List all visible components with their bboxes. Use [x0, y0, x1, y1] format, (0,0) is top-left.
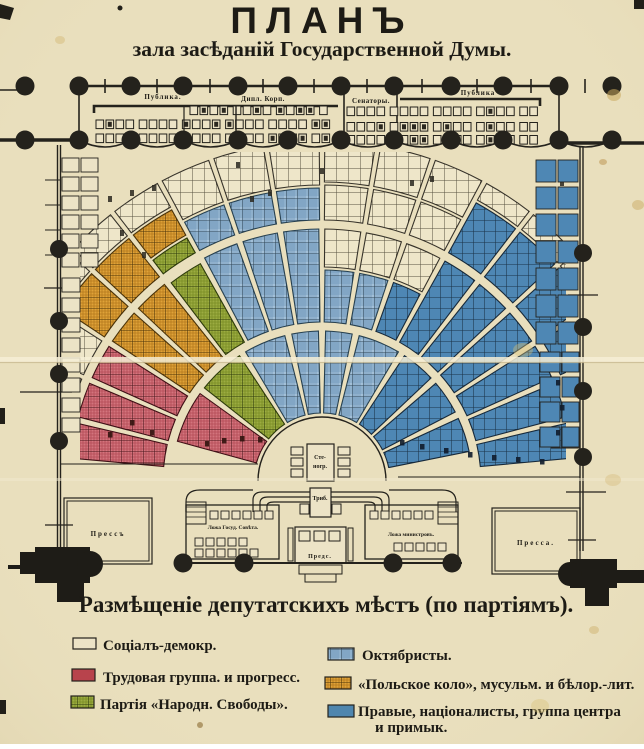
svg-text:Правые, націоналисты, группа ц: Правые, націоналисты, группа центра — [358, 704, 621, 720]
svg-text:Сте-: Сте- — [314, 455, 326, 461]
svg-text:Ложа министровъ.: Ложа министровъ. — [388, 532, 435, 538]
svg-text:Сенаторы.: Сенаторы. — [352, 97, 390, 105]
svg-text:Предс.: Предс. — [308, 554, 332, 560]
svg-text:Октябристы.: Октябристы. — [362, 648, 452, 664]
svg-text:Прессъ: Прессъ — [91, 530, 126, 538]
svg-text:Триб.: Триб. — [312, 495, 328, 502]
svg-text:зала засѣданій Государственной: зала засѣданій Государственной Думы. — [133, 37, 512, 61]
svg-text:Пресса.: Пресса. — [517, 539, 555, 547]
svg-text:Трудовая группа. и прогресс.: Трудовая группа. и прогресс. — [103, 670, 300, 686]
svg-text:Партія «Народн. Свободы».: Партія «Народн. Свободы». — [100, 697, 288, 713]
svg-text:«Польское коло», мусульм. и бѣ: «Польское коло», мусульм. и бѣлор.-лит. — [358, 677, 635, 693]
svg-text:Публика: Публика — [461, 89, 496, 97]
svg-text:ногр.: ногр. — [313, 464, 328, 470]
svg-text:и примык.: и примык. — [375, 720, 448, 736]
svg-text:Размѣщеніе депутатскихъ мѣстъ: Размѣщеніе депутатскихъ мѣстъ (по партія… — [79, 592, 573, 617]
svg-text:Соціалъ-демокр.: Соціалъ-демокр. — [103, 638, 217, 654]
svg-text:ПЛАНЪ: ПЛАНЪ — [230, 0, 413, 41]
svg-text:Ложа Госуд. Совѣта.: Ложа Госуд. Совѣта. — [208, 524, 259, 531]
svg-text:Дипл. Корп.: Дипл. Корп. — [241, 95, 285, 103]
svg-text:Публика.: Публика. — [144, 93, 181, 101]
